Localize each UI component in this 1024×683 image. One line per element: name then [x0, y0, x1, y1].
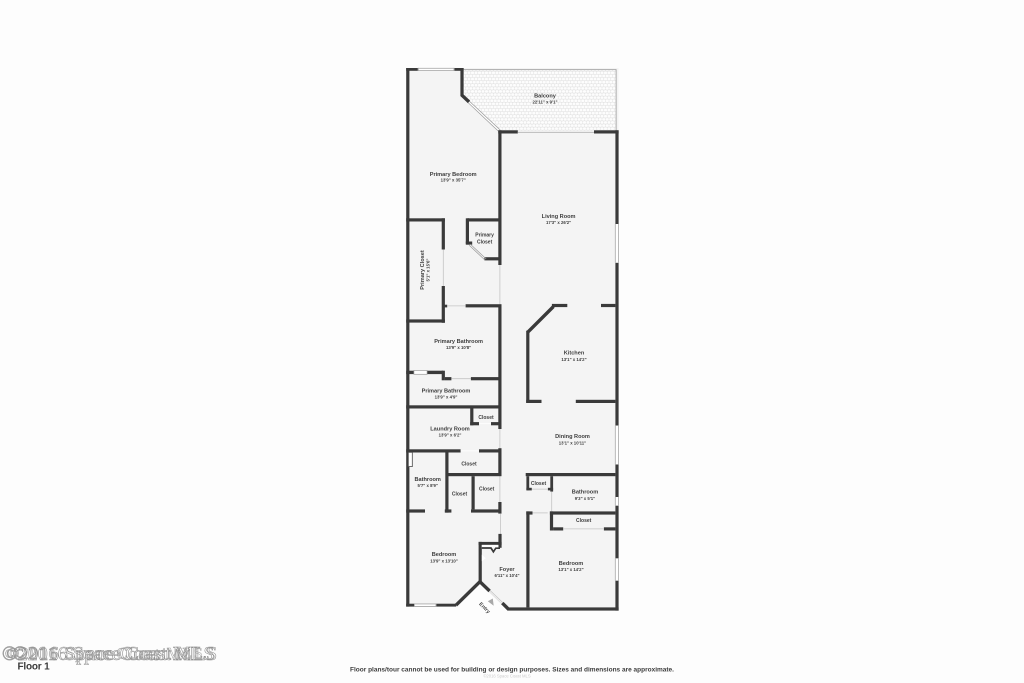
svg-text:9'3" x 5'1": 9'3" x 5'1" — [575, 496, 595, 501]
svg-text:17'3" x 26'2": 17'3" x 26'2" — [546, 220, 571, 225]
svg-text:Closet: Closet — [479, 487, 495, 493]
svg-text:Bedroom: Bedroom — [432, 552, 457, 558]
svg-text:13'1" x 14'2": 13'1" x 14'2" — [558, 567, 583, 572]
svg-text:5'1" x 15'6": 5'1" x 15'6" — [426, 259, 431, 282]
svg-text:Foyer: Foyer — [499, 567, 515, 573]
svg-text:13'9" x 35'7": 13'9" x 35'7" — [441, 178, 466, 183]
svg-text:Dining Room: Dining Room — [555, 434, 590, 440]
svg-text:13'9" x 4'9": 13'9" x 4'9" — [435, 394, 458, 399]
svg-text:13'9" x 6'2": 13'9" x 6'2" — [439, 432, 462, 437]
svg-text:Closet: Closet — [461, 462, 477, 468]
svg-text:Closet: Closet — [531, 481, 547, 487]
svg-text:22'11" x 9'1": 22'11" x 9'1" — [533, 99, 558, 104]
svg-text:©2016 Space Coast MLS: ©2016 Space Coast MLS — [483, 674, 531, 679]
svg-text:Floor 1: Floor 1 — [18, 662, 51, 673]
svg-text:Primary: Primary — [475, 233, 494, 239]
svg-text:©2016 Space Coast MLS: ©2016 Space Coast MLS — [7, 646, 204, 663]
svg-text:Bedroom: Bedroom — [559, 561, 584, 567]
svg-text:Kitchen: Kitchen — [564, 350, 585, 356]
svg-text:13'9" x 10'8": 13'9" x 10'8" — [446, 345, 471, 350]
svg-text:13'9" x 13'10": 13'9" x 13'10" — [430, 558, 458, 563]
svg-text:Closet: Closet — [477, 239, 493, 245]
svg-text:Bathroom: Bathroom — [572, 490, 598, 496]
svg-text:6'11" x 10'4": 6'11" x 10'4" — [495, 573, 520, 578]
svg-text:5'7" x 8'9": 5'7" x 8'9" — [417, 483, 437, 488]
svg-text:Entry: Entry — [477, 601, 491, 615]
svg-text:Floor plans/tour cannot be use: Floor plans/tour cannot be used for buil… — [350, 667, 674, 674]
svg-text:Closet: Closet — [452, 492, 468, 498]
svg-text:13'1" x 10'11": 13'1" x 10'11" — [559, 441, 586, 446]
svg-text:Closet: Closet — [576, 518, 592, 524]
svg-text:Living Room: Living Room — [542, 214, 576, 220]
svg-text:Closet: Closet — [478, 415, 494, 421]
svg-text:13'1" x 14'2": 13'1" x 14'2" — [561, 357, 586, 362]
